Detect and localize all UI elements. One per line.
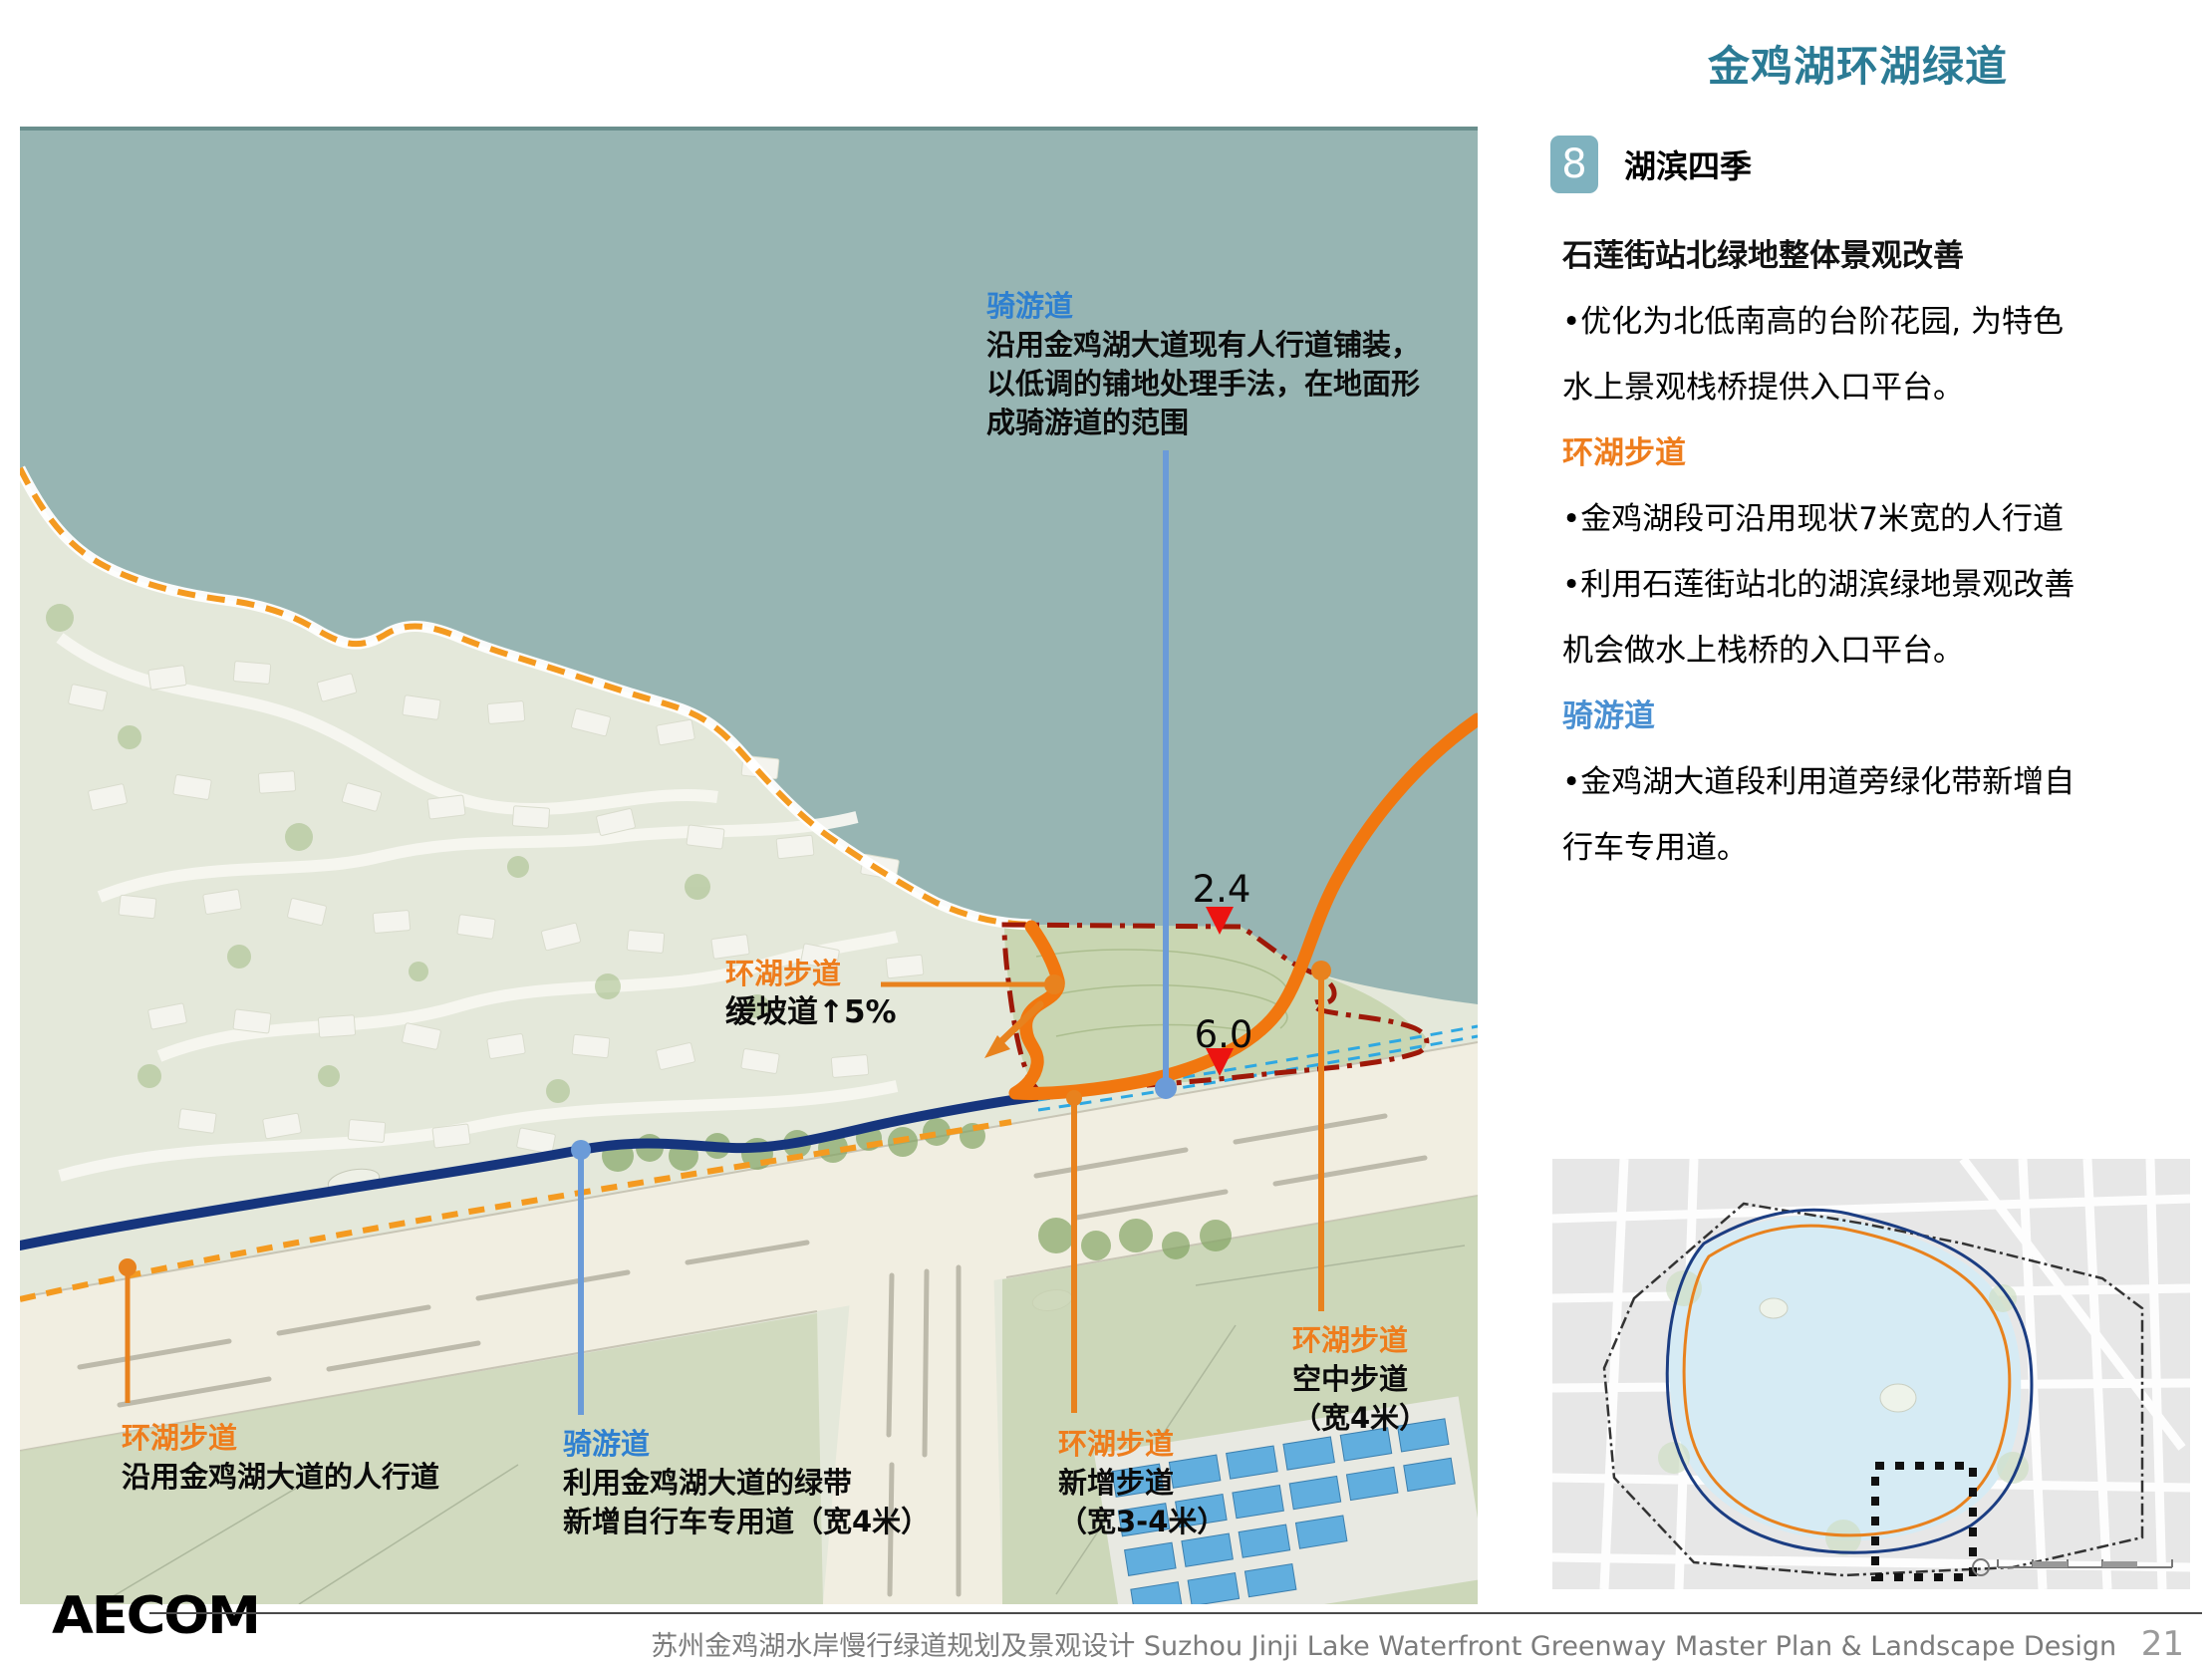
locator-map-graphic: [1544, 1149, 2197, 1597]
footer-title-zh: 苏州金鸡湖水岸慢行绿道规划及景观设计: [651, 1631, 1135, 1662]
annotation-bike-lane: 骑游道 利用金鸡湖大道的绿带 新增自行车专用道（宽4米）: [563, 1425, 930, 1541]
annotation-walk-existing: 环湖步道 沿用金鸡湖大道的人行道: [122, 1419, 439, 1497]
section-number-badge: 8: [1550, 136, 1598, 193]
panel-text-line: •优化为北低南高的台阶花园, 为特色: [1562, 289, 2029, 355]
map-top-edge: [20, 127, 1478, 131]
annotation-title: 环湖步道: [1058, 1425, 1226, 1464]
panel-subtitle: 石莲街站北绿地整体景观改善: [1562, 223, 2029, 289]
panel-heading-walkway: 环湖步道: [1562, 420, 2029, 486]
annotation-title: 环湖步道: [122, 1419, 439, 1458]
annotation-title: 环湖步道: [725, 955, 897, 993]
annotation-title: 骑游道: [986, 287, 1420, 326]
locator-island: [1760, 1298, 1788, 1318]
panel-text-line: 行车专用道。: [1562, 815, 2029, 881]
annotation-title: 骑游道: [563, 1425, 930, 1464]
panel-text-line: •利用石莲街站北的湖滨绿地景观改善: [1562, 552, 2029, 618]
annotation-walk-sky: 环湖步道 空中步道 （宽4米）: [1292, 1321, 1428, 1438]
section-title: 湖滨四季: [1624, 141, 1752, 187]
panel-text-line: •金鸡湖段可沿用现状7米宽的人行道: [1562, 486, 2029, 552]
footer-divider: [149, 1612, 2202, 1614]
panel-heading-bikeway: 骑游道: [1562, 684, 2029, 749]
footer-title-en: Suzhou Jinji Lake Waterfront Greenway Ma…: [1144, 1631, 2116, 1662]
page-title: 金鸡湖环湖绿道: [1196, 33, 2008, 94]
description-panel: 8 湖滨四季 石莲街站北绿地整体景观改善 •优化为北低南高的台阶花园, 为特色 …: [1550, 136, 2029, 881]
page-number: 21: [2141, 1624, 2184, 1664]
aerial-plan-map: 骑游道 沿用金鸡湖大道现有人行道铺装， 以低调的铺地处理手法，在地面形 成骑游道…: [20, 127, 1478, 1604]
dimension-2-4: 2.4: [1157, 868, 1286, 911]
annotation-walk-new: 环湖步道 新增步道 （宽3-4米）: [1058, 1425, 1226, 1541]
locator-map: [1544, 1149, 2197, 1597]
annotation-bike-top: 骑游道 沿用金鸡湖大道现有人行道铺装， 以低调的铺地处理手法，在地面形 成骑游道…: [986, 287, 1420, 442]
footer: 苏州金鸡湖水岸慢行绿道规划及景观设计 Suzhou Jinji Lake Wat…: [0, 1624, 2184, 1664]
panel-text-line: 机会做水上栈桥的入口平台。: [1562, 618, 2029, 684]
locator-island-2: [1880, 1384, 1916, 1412]
dimension-6-0: 6.0: [1159, 1013, 1288, 1056]
panel-text-line: •金鸡湖大道段利用道旁绿化带新增自: [1562, 749, 2029, 815]
annotation-title: 环湖步道: [1292, 1321, 1428, 1360]
annotation-ramp: 环湖步道 缓坡道↑5%: [725, 955, 897, 1032]
panel-text-line: 水上景观栈桥提供入口平台。: [1562, 355, 2029, 420]
